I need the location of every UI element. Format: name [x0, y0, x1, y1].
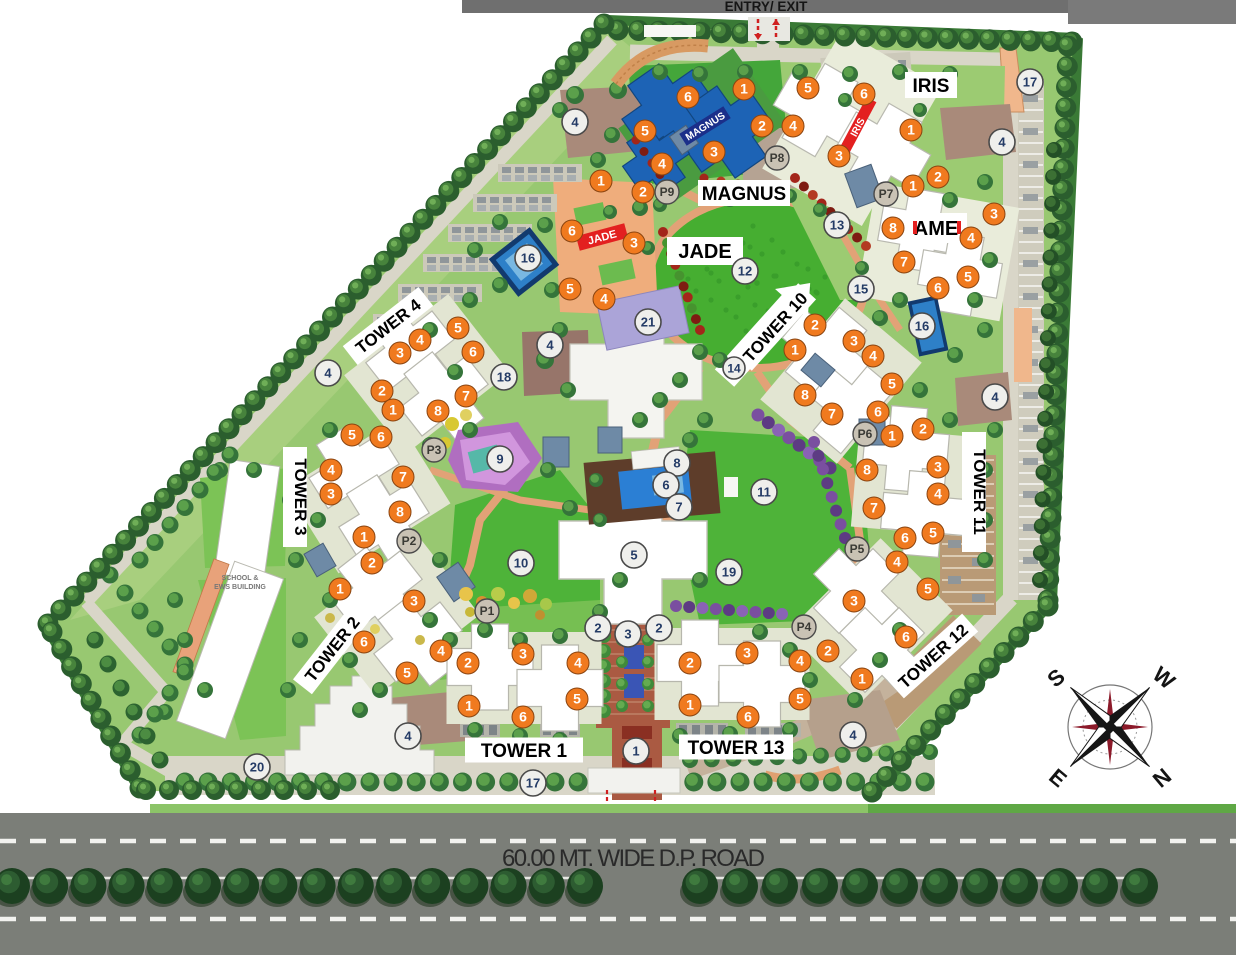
svg-text:6: 6: [662, 478, 669, 493]
svg-text:6: 6: [684, 89, 692, 105]
svg-text:7: 7: [900, 254, 908, 270]
svg-text:2: 2: [686, 655, 694, 671]
svg-text:5: 5: [454, 320, 462, 336]
svg-text:2: 2: [464, 655, 472, 671]
svg-text:MAGNUS: MAGNUS: [702, 184, 786, 205]
svg-text:1: 1: [858, 671, 866, 687]
svg-text:14: 14: [727, 361, 741, 375]
svg-text:4: 4: [404, 729, 412, 744]
svg-text:3: 3: [630, 235, 638, 251]
svg-text:P6: P6: [858, 427, 873, 441]
svg-text:6: 6: [360, 634, 368, 650]
svg-text:7: 7: [399, 469, 407, 485]
svg-text:8: 8: [801, 387, 809, 403]
svg-text:20: 20: [250, 760, 264, 775]
svg-text:JADE: JADE: [678, 241, 731, 263]
svg-text:7: 7: [675, 500, 682, 515]
svg-text:5: 5: [403, 665, 411, 681]
svg-text:3: 3: [396, 345, 404, 361]
svg-text:15: 15: [854, 282, 868, 297]
svg-text:10: 10: [514, 556, 528, 571]
svg-text:11: 11: [757, 485, 771, 500]
svg-text:4: 4: [998, 135, 1006, 150]
svg-text:6: 6: [469, 344, 477, 360]
svg-text:17: 17: [526, 776, 540, 791]
svg-text:1: 1: [791, 342, 799, 358]
svg-text:19: 19: [722, 565, 736, 580]
svg-text:2: 2: [378, 383, 386, 399]
svg-text:TOWER 11: TOWER 11: [970, 449, 989, 535]
svg-text:1: 1: [597, 173, 605, 189]
svg-text:P1: P1: [480, 604, 495, 618]
svg-text:2: 2: [758, 118, 766, 134]
svg-text:1: 1: [360, 529, 368, 545]
svg-text:7: 7: [828, 406, 836, 422]
svg-text:8: 8: [863, 462, 871, 478]
svg-text:EWS BUILDING: EWS BUILDING: [214, 584, 266, 591]
svg-text:3: 3: [835, 148, 843, 164]
svg-text:6: 6: [934, 280, 942, 296]
svg-text:3: 3: [410, 593, 418, 609]
svg-text:60.00 MT. WIDE D.P. ROAD: 60.00 MT. WIDE D.P. ROAD: [502, 845, 765, 872]
svg-text:2: 2: [919, 421, 927, 437]
svg-text:21: 21: [641, 315, 655, 330]
svg-text:16: 16: [521, 251, 535, 266]
svg-text:2: 2: [811, 317, 819, 333]
svg-text:P2: P2: [402, 534, 417, 548]
svg-text:5: 5: [641, 123, 649, 139]
svg-text:IRIS: IRIS: [913, 76, 950, 97]
svg-text:4: 4: [600, 291, 608, 307]
svg-text:7: 7: [462, 388, 470, 404]
svg-text:4: 4: [849, 728, 857, 743]
svg-text:P7: P7: [879, 187, 894, 201]
svg-text:4: 4: [789, 118, 797, 134]
svg-text:5: 5: [929, 525, 937, 541]
svg-text:1: 1: [465, 698, 473, 714]
svg-text:4: 4: [571, 115, 579, 130]
svg-text:4: 4: [546, 338, 554, 353]
svg-text:P3: P3: [427, 443, 442, 457]
svg-text:TOWER 1: TOWER 1: [481, 741, 568, 762]
svg-text:3: 3: [519, 646, 527, 662]
svg-text:8: 8: [434, 403, 442, 419]
svg-text:4: 4: [991, 390, 999, 405]
svg-text:2: 2: [368, 555, 376, 571]
svg-text:TOWER 13: TOWER 13: [688, 738, 785, 759]
svg-text:4: 4: [967, 230, 975, 246]
svg-text:3: 3: [327, 486, 335, 502]
svg-text:6: 6: [568, 223, 576, 239]
svg-text:2: 2: [594, 621, 601, 636]
svg-text:4: 4: [327, 462, 335, 478]
svg-text:SCHOOL &: SCHOOL &: [222, 575, 259, 582]
svg-text:3: 3: [850, 333, 858, 349]
svg-text:6: 6: [377, 429, 385, 445]
svg-text:13: 13: [830, 218, 844, 233]
svg-text:5: 5: [804, 80, 812, 96]
svg-text:5: 5: [566, 281, 574, 297]
svg-text:3: 3: [934, 459, 942, 475]
svg-text:17: 17: [1023, 75, 1037, 90]
svg-text:3: 3: [990, 206, 998, 222]
svg-text:4: 4: [658, 156, 666, 172]
svg-text:6: 6: [902, 629, 910, 645]
svg-text:ENTRY/ EXIT: ENTRY/ EXIT: [725, 0, 809, 14]
svg-text:TOWER 3: TOWER 3: [291, 458, 310, 535]
svg-text:7: 7: [870, 500, 878, 516]
svg-text:18: 18: [497, 370, 511, 385]
svg-text:5: 5: [796, 691, 804, 707]
svg-text:5: 5: [964, 269, 972, 285]
svg-text:AME: AME: [914, 218, 958, 240]
svg-text:3: 3: [710, 144, 718, 160]
svg-text:1: 1: [740, 81, 748, 97]
svg-text:16: 16: [915, 319, 929, 334]
svg-text:1: 1: [336, 581, 344, 597]
svg-text:1: 1: [389, 402, 397, 418]
svg-text:1: 1: [907, 122, 915, 138]
svg-text:9: 9: [496, 452, 503, 467]
svg-text:5: 5: [348, 427, 356, 443]
svg-text:4: 4: [416, 332, 424, 348]
svg-text:1: 1: [909, 178, 917, 194]
svg-text:8: 8: [889, 220, 897, 236]
svg-text:6: 6: [519, 709, 527, 725]
svg-text:1: 1: [686, 697, 694, 713]
svg-text:12: 12: [738, 264, 752, 279]
svg-text:4: 4: [437, 643, 445, 659]
svg-text:3: 3: [624, 627, 631, 642]
svg-text:6: 6: [901, 530, 909, 546]
svg-text:4: 4: [324, 366, 332, 381]
svg-text:1: 1: [632, 744, 639, 759]
svg-text:2: 2: [934, 169, 942, 185]
svg-text:8: 8: [396, 504, 404, 520]
svg-text:5: 5: [573, 691, 581, 707]
svg-text:6: 6: [744, 709, 752, 725]
svg-text:5: 5: [888, 376, 896, 392]
svg-text:P8: P8: [770, 151, 785, 165]
svg-text:4: 4: [796, 653, 804, 669]
svg-text:4: 4: [893, 554, 901, 570]
svg-text:2: 2: [824, 643, 832, 659]
svg-text:4: 4: [934, 486, 942, 502]
svg-text:4: 4: [574, 655, 582, 671]
svg-text:3: 3: [743, 645, 751, 661]
svg-text:1: 1: [888, 428, 896, 444]
svg-text:6: 6: [874, 404, 882, 420]
svg-text:8: 8: [673, 456, 680, 471]
svg-text:3: 3: [850, 593, 858, 609]
svg-text:2: 2: [655, 621, 662, 636]
svg-text:2: 2: [639, 184, 647, 200]
svg-text:P4: P4: [797, 620, 812, 634]
svg-text:P9: P9: [660, 185, 675, 199]
svg-text:4: 4: [869, 348, 877, 364]
svg-text:5: 5: [630, 548, 637, 563]
svg-text:P5: P5: [850, 542, 865, 556]
svg-text:5: 5: [924, 581, 932, 597]
svg-text:6: 6: [860, 86, 868, 102]
